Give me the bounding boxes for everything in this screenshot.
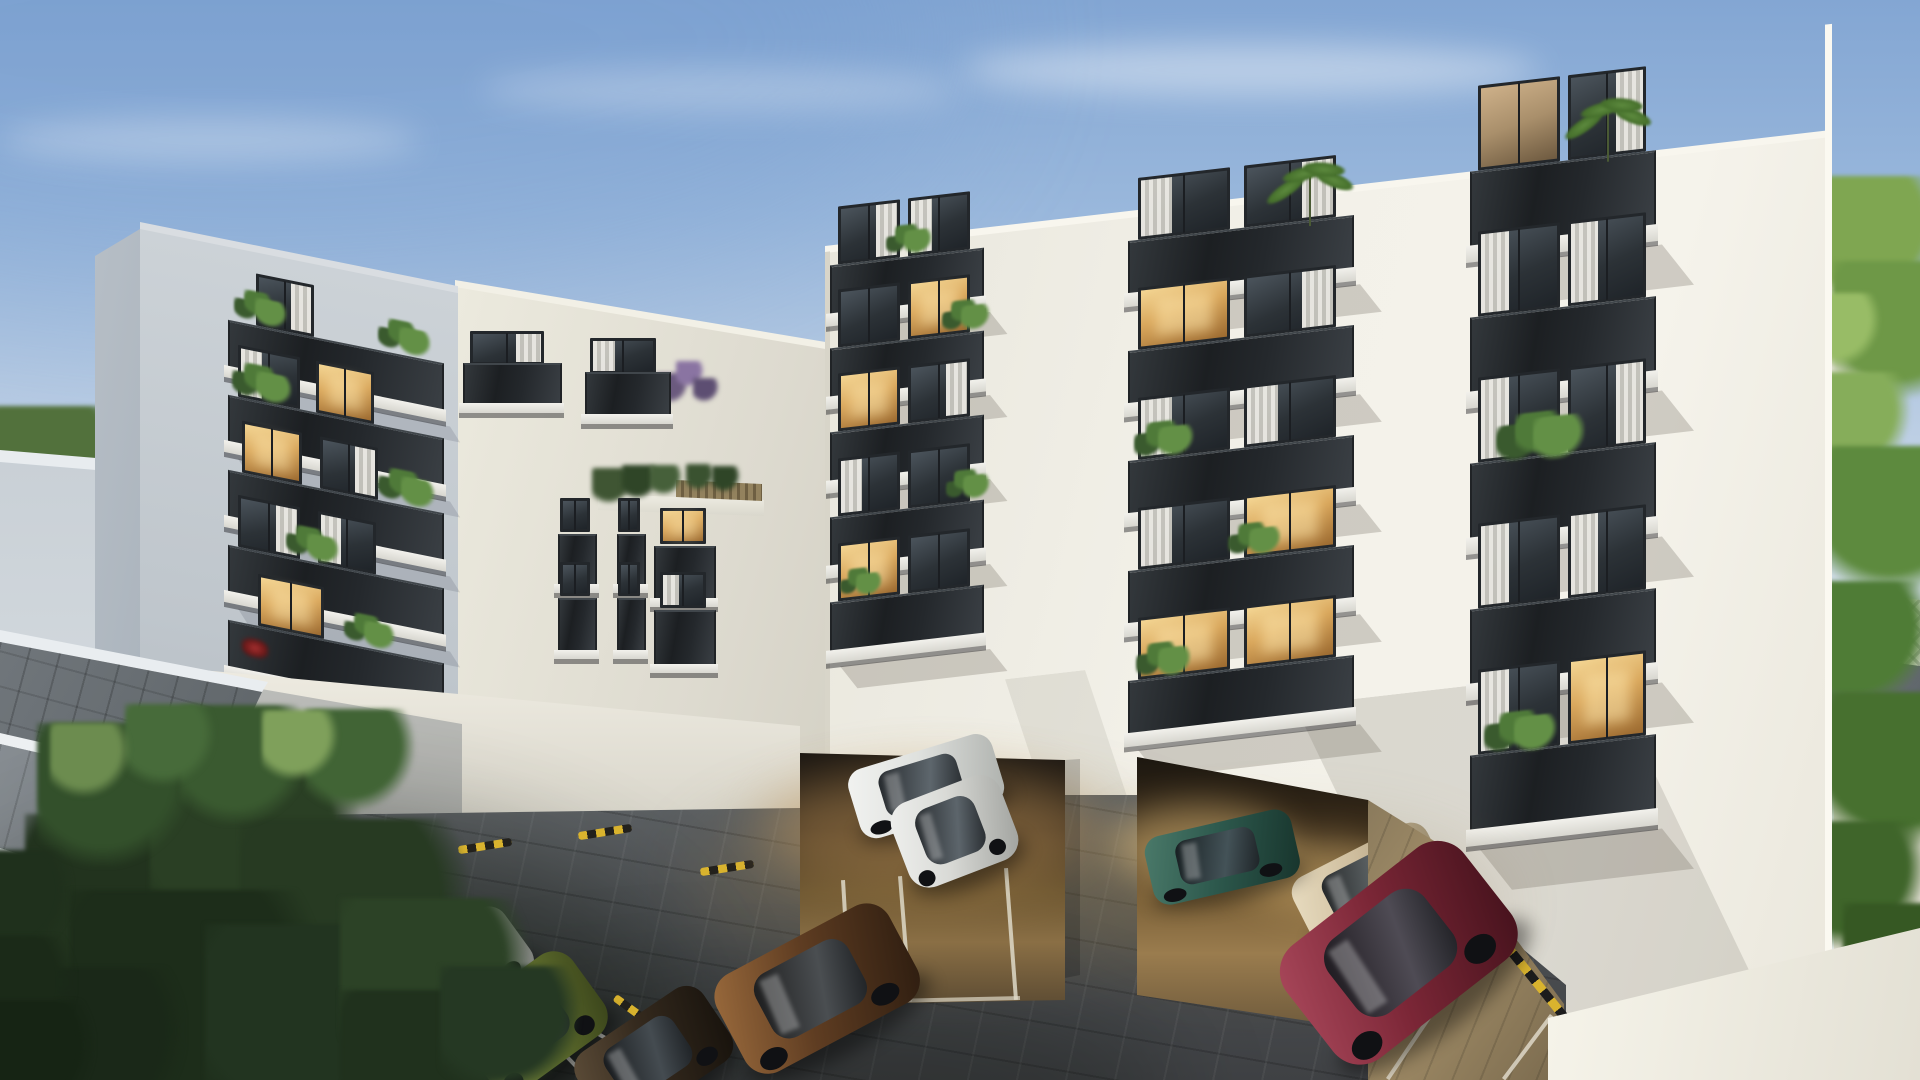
- architectural-rendering-scene: [0, 0, 1920, 1080]
- bush-left-edge-canopy: [0, 1001, 94, 1080]
- bush-left-edge: [0, 0, 1920, 1080]
